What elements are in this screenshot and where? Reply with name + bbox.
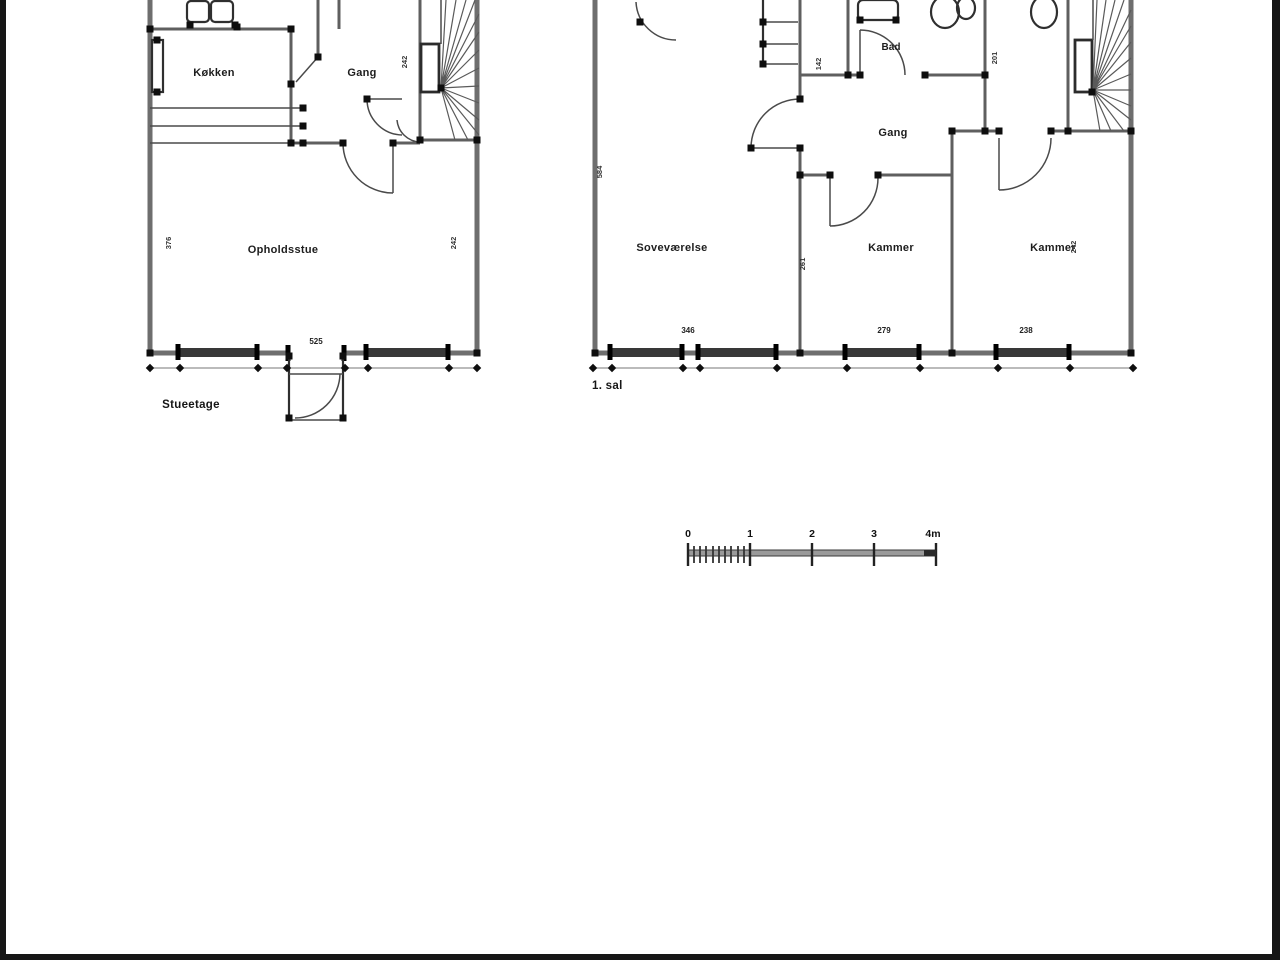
room-label-hall-ff: Gang [878,127,907,139]
dim-chamber-right-width: 238 [1019,326,1033,335]
shower-icon [858,0,898,20]
entry-porch [289,356,343,420]
first-floor-junction-dots [592,17,1135,357]
ground-floor-dimension-line [146,364,481,372]
frame-bottom-edge [0,954,1280,960]
dim-chamber-mid-width: 279 [877,326,891,335]
dim-ff-wc: 201 [990,52,999,65]
room-label-kitchen: Køkken [193,67,235,79]
sink-icon [211,1,233,22]
scale-tick-0: 0 [685,528,691,540]
closet-icon [763,0,798,67]
first-floor-plan: Soveværelse Bad Gang Kammer Kammer 1. sa… [589,0,1137,392]
floor-label-ground: Stueetage [162,399,220,411]
dim-gf-left: 376 [164,237,173,250]
sink-icon [187,1,209,22]
dim-bedroom-width: 346 [681,326,695,335]
scale-tick-4m: 4m [925,528,940,540]
dim-living-width: 525 [309,337,323,346]
floor-label-first: 1. sal [592,380,623,392]
first-floor-doors [636,2,1051,226]
dim-gf-right: 242 [449,237,458,250]
scale-bar-endcap [924,550,936,556]
frame-left-edge [0,0,6,960]
dim-ff-bath: 142 [814,58,823,71]
ground-floor-windows [176,344,451,361]
cabinet-icon [152,40,163,92]
counter-lines [150,108,307,143]
toilet-icon [931,0,959,28]
first-floor-dimension-line [589,364,1137,372]
stair-first [1075,0,1131,131]
floorplan-canvas: Køkken Gang Opholdsstue Stueetage 525 37… [0,0,1280,960]
scale-bar: 0 1 2 3 4m [685,528,941,566]
scale-tick-1: 1 [747,528,753,540]
first-floor-labels: Soveværelse Bad Gang Kammer Kammer 1. sa… [592,42,1078,392]
room-label-living-room: Opholdsstue [248,244,319,256]
frame-right-edge [1272,0,1280,960]
room-label-bedroom: Soveværelse [636,242,707,254]
bath-fixtures [858,0,1057,28]
room-label-hall-gf: Gang [347,67,376,79]
room-label-chamber-mid: Kammer [868,242,914,254]
scale-tick-2: 2 [809,528,815,540]
dim-ff-left: 584 [595,165,604,178]
stair-ground [421,0,479,140]
first-floor-walls [593,0,1133,355]
page-frame [0,0,1280,960]
toilet-icon [1031,0,1057,28]
dim-gf-stair: 242 [400,56,409,69]
scale-tick-3: 3 [871,528,877,540]
room-label-bath: Bad [882,42,901,53]
dim-ff-wall: 261 [798,258,807,271]
dim-ff-right: 242 [1069,241,1078,254]
ground-floor-labels: Køkken Gang Opholdsstue Stueetage 525 37… [162,56,458,411]
ground-floor-plan: Køkken Gang Opholdsstue Stueetage 525 37… [146,0,481,422]
